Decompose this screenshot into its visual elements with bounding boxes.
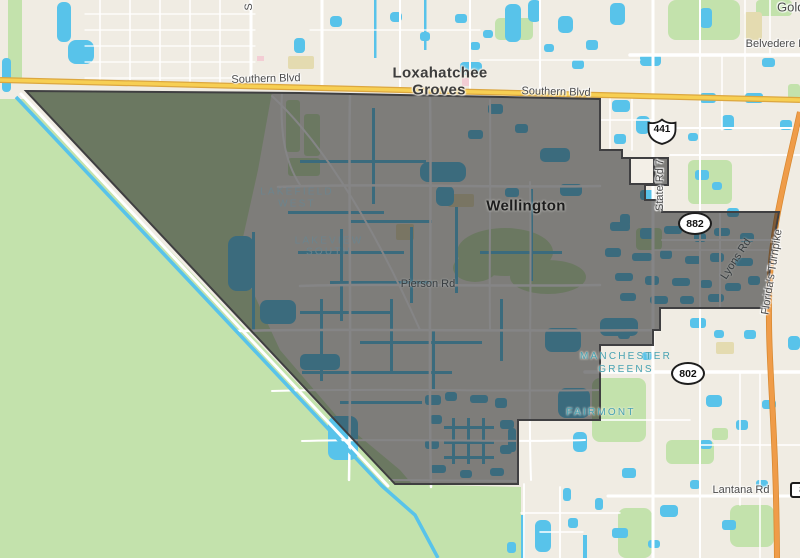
base-map-svg [0, 0, 800, 558]
map-canvas[interactable]: Loxahatchee Groves Wellington Southern B… [0, 0, 800, 558]
boundary-enclave [630, 158, 654, 184]
